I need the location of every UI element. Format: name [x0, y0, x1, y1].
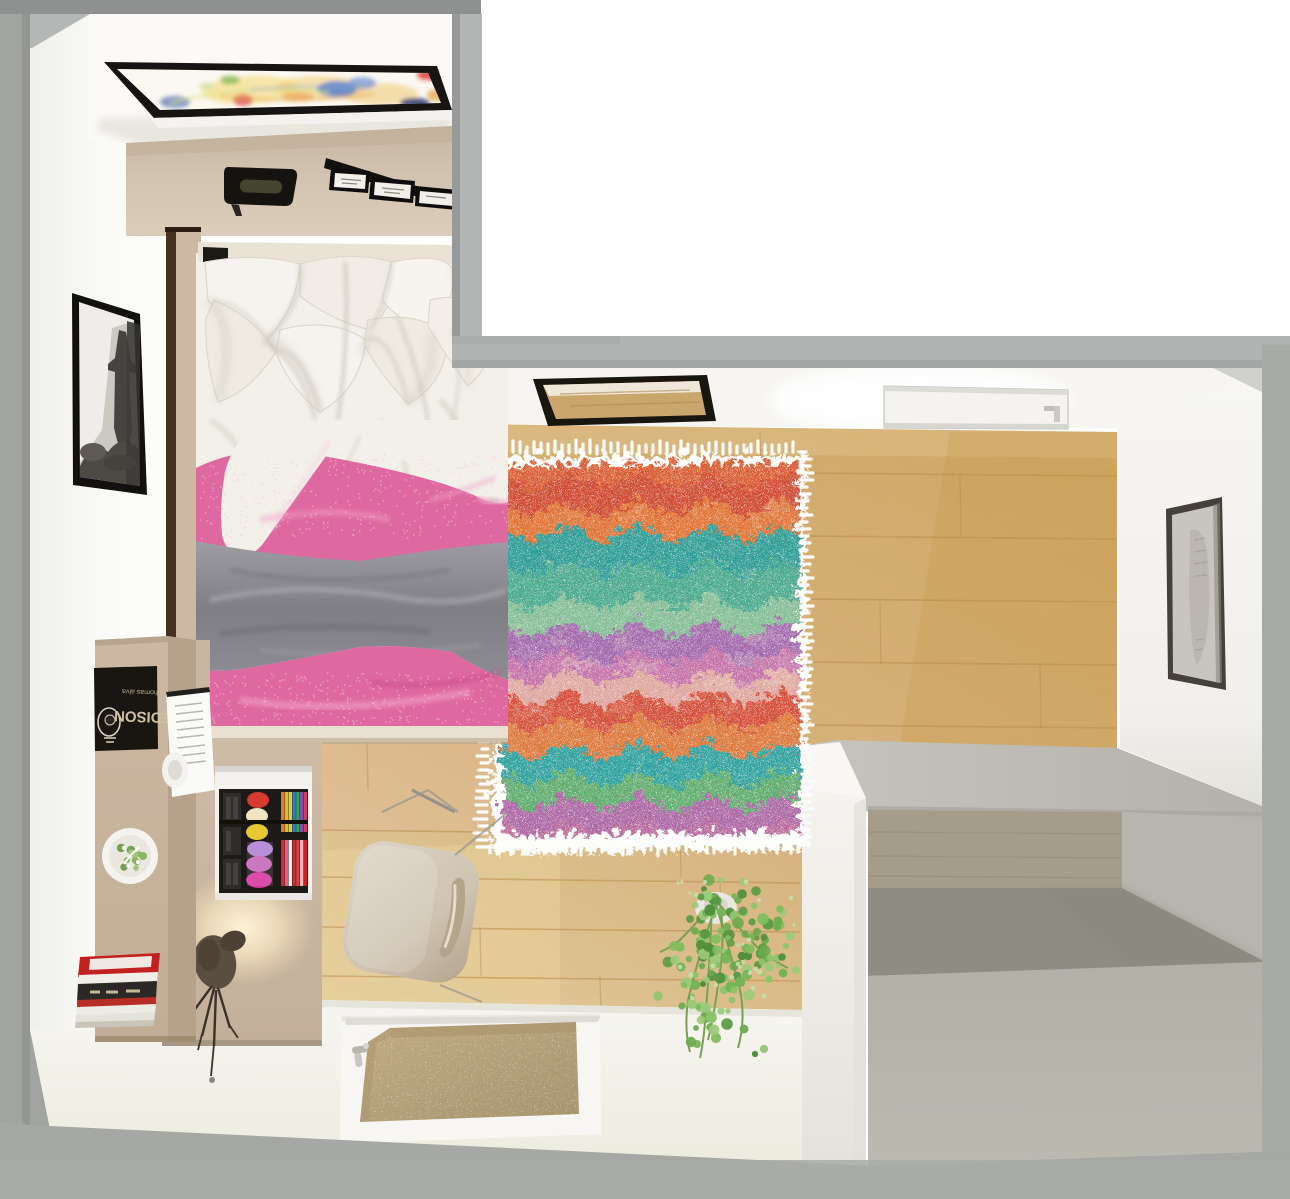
- svg-text:EDISON: EDISON: [114, 707, 172, 726]
- svg-text:thomas alva: thomas alva: [122, 687, 160, 695]
